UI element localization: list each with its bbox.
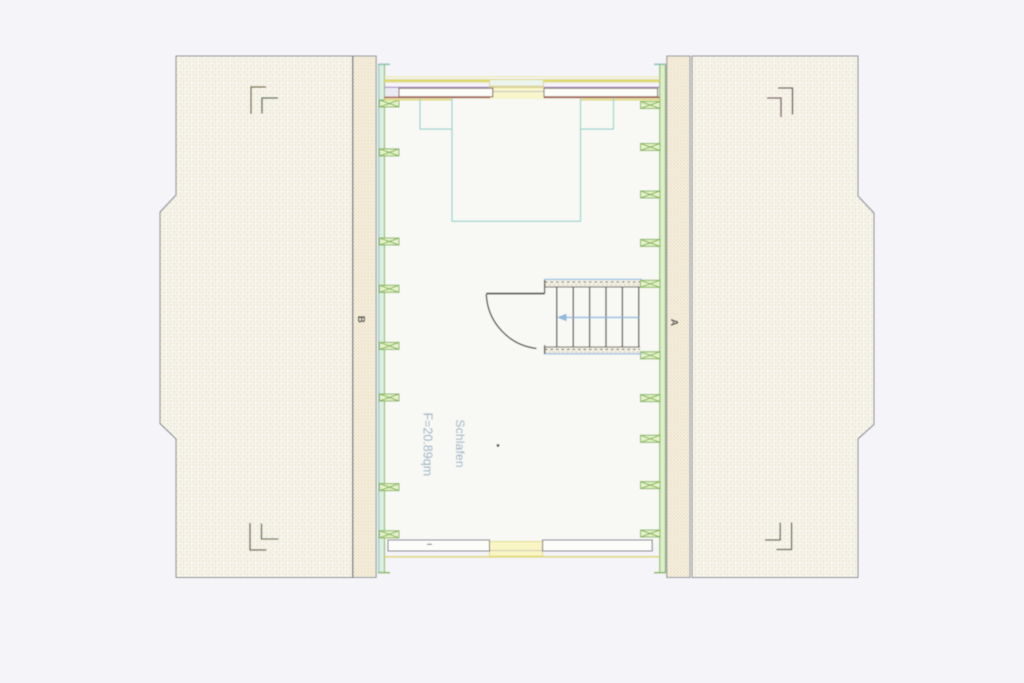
svg-text:B: B xyxy=(355,316,366,323)
svg-text:Schlafen: Schlafen xyxy=(453,420,467,468)
svg-text:A: A xyxy=(668,319,679,326)
svg-text:F=20.89qm: F=20.89qm xyxy=(421,413,435,477)
